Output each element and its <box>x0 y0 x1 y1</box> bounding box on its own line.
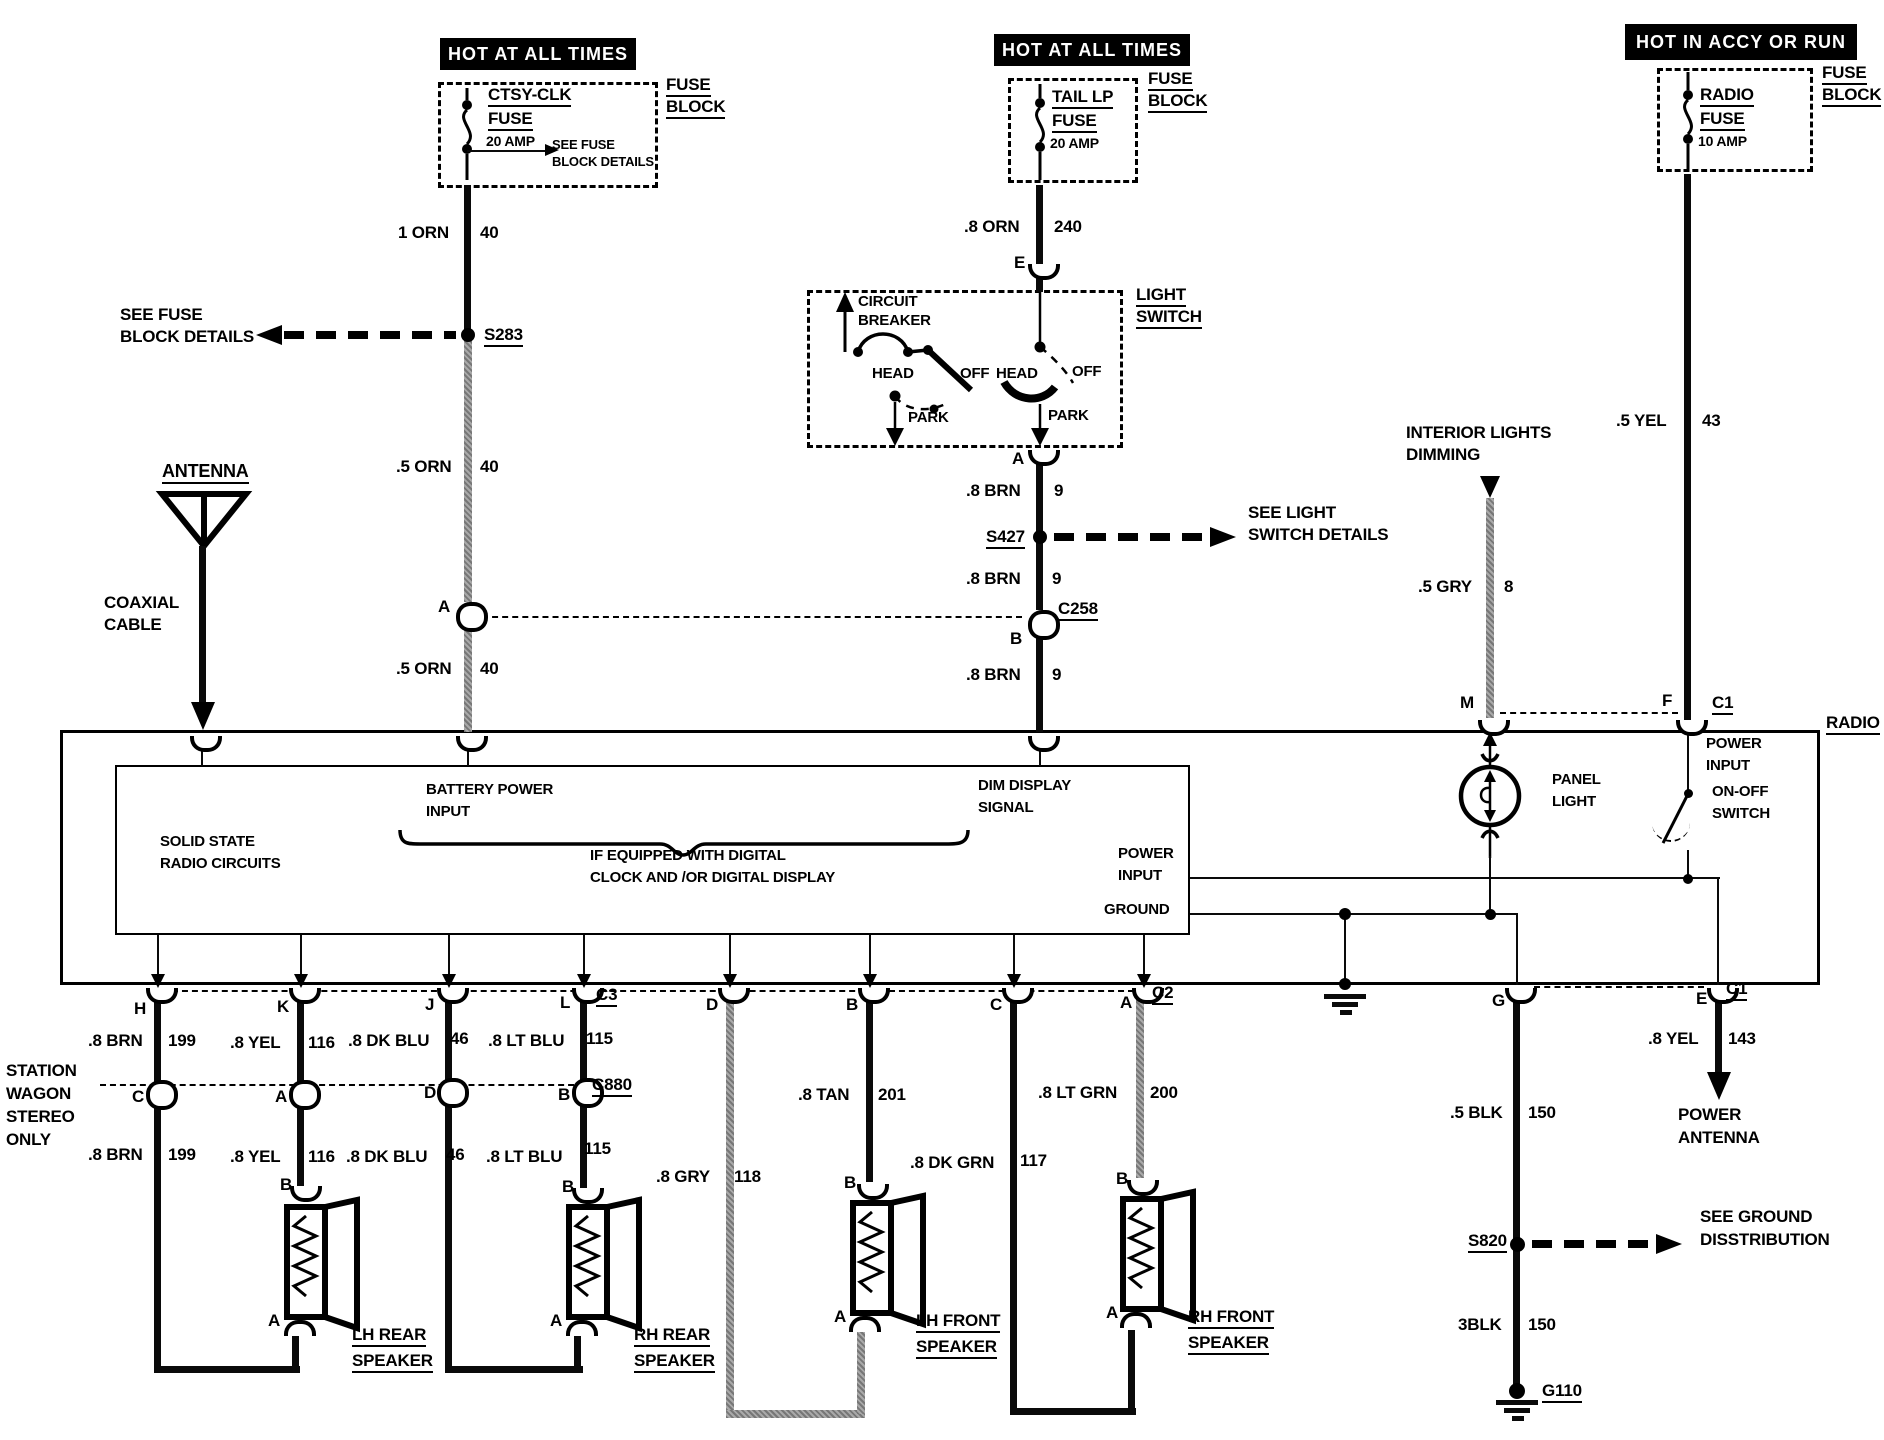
panel-light-icon <box>1458 732 1522 858</box>
label-lswitch-w4n: 9 <box>1052 666 1061 684</box>
fuse-icon <box>457 88 477 180</box>
label-front-gry: .8 GRY <box>656 1168 710 1186</box>
wire-segment <box>1513 998 1520 1388</box>
splice-dot <box>1509 1383 1525 1399</box>
label-radio-label: RADIO <box>1826 714 1880 735</box>
splice-dot <box>1683 874 1693 884</box>
connector-icon <box>437 988 469 1004</box>
label-left-w2n: 40 <box>480 458 499 476</box>
wire-segment <box>869 935 871 975</box>
wire-segment <box>297 1104 304 1190</box>
fuse-icon <box>1678 72 1698 172</box>
label-radio-gnd: GROUND <box>1104 902 1169 918</box>
wire-segment <box>157 935 159 975</box>
label-radio-ss1: SOLID STATE <box>160 834 255 850</box>
label-dimming-m: M <box>1460 694 1474 712</box>
label-lswitch-see2: SWITCH DETAILS <box>1248 526 1388 544</box>
label-radio-pit2: INPUT <box>1706 758 1750 774</box>
connector-icon <box>289 1094 321 1110</box>
label-dimming-t1: INTERIOR LIGHTS <box>1406 424 1551 442</box>
label-dimming-t2: DIMMING <box>1406 446 1480 464</box>
arrowhead-icon <box>1480 476 1500 498</box>
label-left-see2: BLOCK DETAILS <box>120 328 254 346</box>
connector-icon <box>146 1094 178 1110</box>
label-speakers-a: A <box>550 1312 562 1330</box>
wire-segment <box>445 1366 583 1373</box>
splice-dot <box>1339 978 1351 990</box>
arrowhead-icon <box>442 974 456 988</box>
wire-segment <box>1512 1416 1524 1421</box>
label-row1-dkblu: .8 DK BLU <box>348 1032 429 1050</box>
arrowhead-icon <box>1656 1234 1682 1254</box>
splice-dot <box>1684 789 1693 798</box>
label-speakers-rf2: SPEAKER <box>1188 1334 1269 1355</box>
wire-segment <box>1036 185 1043 264</box>
wire-segment <box>1010 1408 1136 1415</box>
label-left-see1: SEE FUSE <box>120 306 202 324</box>
label-conns-k: K <box>277 998 289 1016</box>
label-speakers-lr2: SPEAKER <box>352 1352 433 1373</box>
label-front-gryn: 118 <box>734 1168 761 1186</box>
wire-segment <box>154 1366 300 1373</box>
label-lswitch-w2n: 9 <box>1054 482 1063 500</box>
wire-segment <box>729 935 731 975</box>
label-speakers-b: B <box>844 1174 856 1192</box>
label-fuse1-blk2: BLOCK <box>666 98 725 119</box>
label-radio-dimd2: SIGNAL <box>978 800 1033 816</box>
connector-icon <box>456 616 488 632</box>
wire-segment <box>448 935 450 975</box>
arrowhead-icon <box>577 974 591 988</box>
label-accy-f: F <box>1662 692 1672 710</box>
label-conns-d: D <box>706 996 718 1014</box>
label-row1-yeln: 116 <box>308 1034 335 1052</box>
label-lswitch-e: E <box>1014 254 1025 272</box>
speaker-icon-rh-front <box>1120 1192 1196 1320</box>
label-fuse3-amp: 10 AMP <box>1698 134 1747 149</box>
label-left-w2: .5 ORN <box>396 458 451 476</box>
label-radio-dig2: CLOCK AND /OR DIGITAL DISPLAY <box>590 870 835 886</box>
label-lswitch-park_r: PARK <box>1048 408 1089 424</box>
label-c880-a: A <box>275 1088 287 1106</box>
label-speakers-lf1: LH FRONT <box>916 1312 1000 1333</box>
connector-icon <box>858 988 890 1004</box>
wire-segment <box>1324 994 1366 999</box>
label-fuse1-name2: FUSE <box>488 110 533 131</box>
wire-segment <box>1344 915 1346 985</box>
arrowhead-icon <box>256 325 282 345</box>
wire-segment <box>1332 1002 1358 1007</box>
label-left-w3: .5 ORN <box>396 660 451 678</box>
label-groundckt-w1n: 150 <box>1528 1104 1556 1122</box>
label-radio-batt2: INPUT <box>426 804 470 820</box>
wire-segment <box>292 1336 299 1368</box>
arrowhead-icon <box>1007 974 1021 988</box>
label-c880-c: C <box>132 1088 144 1106</box>
label-radio-sw2: SWITCH <box>1712 806 1770 822</box>
connector-icon <box>718 988 750 1004</box>
wiring-diagram: HOT AT ALL TIMES HOT AT ALL TIMES HOT IN… <box>0 0 1884 1440</box>
label-row1-ltblun: 115 <box>586 1030 613 1048</box>
label-groundckt-w1: .5 BLK <box>1450 1104 1503 1122</box>
speaker-icon-lh-rear <box>284 1200 360 1328</box>
label-front-dkgrnn: 117 <box>1020 1152 1047 1170</box>
label-front-ltgrn: .8 LT GRN <box>1038 1084 1117 1102</box>
label-c880-label: C880 <box>592 1076 632 1097</box>
label-conns-j: J <box>425 996 434 1014</box>
label-fuse2-amp: 20 AMP <box>1050 136 1099 151</box>
wire-segment <box>1504 1408 1530 1413</box>
wire-segment <box>464 620 472 732</box>
arrowhead-icon <box>294 974 308 988</box>
label-fuse2-blk2: BLOCK <box>1148 92 1207 113</box>
label-lswitch-cb2: BREAKER <box>858 313 931 329</box>
label-lswitch-w3: .8 BRN <box>966 570 1021 588</box>
label-radio-pnl1: PANEL <box>1552 772 1601 788</box>
label-fuse1-note2: BLOCK DETAILS <box>552 155 654 169</box>
label-antenna-coax2: CABLE <box>104 616 162 634</box>
reference-arrow-shaft <box>284 331 456 339</box>
wire-segment <box>574 1336 581 1368</box>
label-radio-pnl2: LIGHT <box>1552 794 1596 810</box>
wire-segment <box>1489 856 1491 914</box>
label-row2-ltblun: 115 <box>584 1140 611 1158</box>
wire-segment <box>866 998 873 1182</box>
label-left-splice: S283 <box>484 326 523 347</box>
label-row1-dkblun: 46 <box>450 1030 469 1048</box>
label-radio-batt1: BATTERY POWER <box>426 782 553 798</box>
label-speakers-rr1: RH REAR <box>634 1326 710 1347</box>
label-radio-pwr1: POWER <box>1118 846 1174 862</box>
wire-segment <box>1684 174 1691 722</box>
label-speakers-lf2: SPEAKER <box>916 1338 997 1359</box>
label-speakers-rf1: RH FRONT <box>1188 1308 1274 1329</box>
reference-arrow-shaft <box>1054 533 1210 541</box>
wire-segment <box>726 1410 865 1418</box>
banner-hot-at-all-times-left: HOT AT ALL TIMES <box>440 38 636 70</box>
label-pantenna-w: .8 YEL <box>1648 1030 1698 1048</box>
label-fuse3-name2: FUSE <box>1700 110 1745 131</box>
wire-segment <box>464 340 472 602</box>
label-row1-brn: .8 BRN <box>88 1032 143 1050</box>
label-conns-l: L <box>560 994 570 1012</box>
label-front-dkgrn: .8 DK GRN <box>910 1154 994 1172</box>
label-fuse1-amp: 20 AMP <box>486 134 535 149</box>
fuse-icon <box>1030 84 1050 180</box>
label-fuse1-blk1: FUSE <box>666 76 711 97</box>
wire-segment <box>154 998 161 1082</box>
label-conns-c: C <box>990 996 1002 1014</box>
label-lswitch-w1: .8 ORN <box>964 218 1019 236</box>
connector-icon <box>1028 264 1060 280</box>
wire-segment <box>1340 1010 1352 1015</box>
label-lswitch-t2: SWITCH <box>1136 308 1202 329</box>
splice-dot <box>1510 1237 1525 1252</box>
connector-icon <box>1002 988 1034 1004</box>
wire-segment <box>1190 913 1518 915</box>
label-radio-sw1: ON-OFF <box>1712 784 1768 800</box>
splice-dot <box>1485 909 1496 920</box>
label-row2-yeln: 116 <box>308 1148 335 1166</box>
label-wagon-l3: STEREO <box>6 1108 75 1126</box>
label-radio-dig1: IF EQUIPPED WITH DIGITAL <box>590 848 786 864</box>
label-lswitch-conn: C258 <box>1058 600 1098 621</box>
label-lswitch-head_l: HEAD <box>872 366 914 382</box>
label-row1-brnn: 199 <box>168 1032 196 1050</box>
wire-segment <box>199 546 206 704</box>
label-lswitch-see1: SEE LIGHT <box>1248 504 1336 522</box>
label-radio-pwr2: INPUT <box>1118 868 1162 884</box>
label-lswitch-w4: .8 BRN <box>966 666 1021 684</box>
wire-segment <box>464 185 471 340</box>
wire-segment <box>1715 998 1722 1076</box>
wire-segment <box>297 998 304 1082</box>
wire-segment <box>1516 915 1518 985</box>
label-conns-h: H <box>134 1000 146 1018</box>
label-groundckt-see1: SEE GROUND <box>1700 1208 1812 1226</box>
label-lswitch-t1: LIGHT <box>1136 286 1186 307</box>
label-wagon-l1: STATION <box>6 1062 77 1080</box>
label-radio-ss2: RADIO CIRCUITS <box>160 856 281 872</box>
splice-dot <box>461 328 475 342</box>
arrowhead-icon <box>1137 974 1151 988</box>
connector-icon <box>146 988 178 1004</box>
speaker-icon-rh-rear <box>566 1200 642 1328</box>
label-row2-ltblu: .8 LT BLU <box>486 1148 562 1166</box>
arrowhead-icon <box>863 974 877 988</box>
label-row2-dkblu: .8 DK BLU <box>346 1148 427 1166</box>
wire-segment <box>1136 998 1144 1178</box>
label-fuse2-name2: FUSE <box>1052 112 1097 133</box>
connector-icon <box>1505 988 1537 1004</box>
label-wagon-l4: ONLY <box>6 1131 51 1149</box>
label-conns-a: A <box>1120 994 1132 1012</box>
connector-icon <box>1028 624 1060 640</box>
wire-segment <box>583 935 585 975</box>
wire-segment <box>726 998 734 1416</box>
label-lswitch-a: A <box>1012 450 1024 468</box>
label-speakers-b: B <box>562 1178 574 1196</box>
label-conns-e: E <box>1696 990 1707 1008</box>
label-dimming-w: .5 GRY <box>1418 578 1472 596</box>
label-antenna-coax1: COAXIAL <box>104 594 179 612</box>
label-accy-w: .5 YEL <box>1616 412 1666 430</box>
label-fuse2-name1: TAIL LP <box>1052 88 1113 109</box>
label-lswitch-splice: S427 <box>986 528 1025 549</box>
dashed-line <box>1534 986 1704 988</box>
wire-segment <box>1013 935 1015 975</box>
label-left-w1: 1 ORN <box>398 224 449 242</box>
dashed-line <box>482 616 1022 618</box>
label-accy-conn: C1 <box>1712 694 1733 715</box>
label-speakers-a: A <box>268 1312 280 1330</box>
banner-hot-at-all-times-middle: HOT AT ALL TIMES <box>994 34 1190 66</box>
wire-segment <box>1486 498 1494 718</box>
wire-segment <box>467 150 545 152</box>
connector-icon <box>437 1092 469 1108</box>
label-c880-b: B <box>558 1086 570 1104</box>
wire-segment <box>1717 879 1719 985</box>
label-left-a: A <box>438 598 450 616</box>
label-front-tann: 201 <box>878 1086 906 1104</box>
label-pantenna-wn: 143 <box>1728 1030 1756 1048</box>
arrowhead-icon <box>723 974 737 988</box>
label-groundckt-see2: DISSTRIBUTION <box>1700 1231 1830 1249</box>
label-speakers-a: A <box>834 1308 846 1326</box>
label-lswitch-head_r: HEAD <box>996 366 1038 382</box>
label-row1-yel: .8 YEL <box>230 1034 280 1052</box>
connector-icon <box>1028 450 1060 466</box>
label-row2-brn: .8 BRN <box>88 1146 143 1164</box>
label-left-w3n: 40 <box>480 660 499 678</box>
label-row1-ltblu: .8 LT BLU <box>488 1032 564 1050</box>
label-row2-yel: .8 YEL <box>230 1148 280 1166</box>
label-lswitch-off_l: OFF <box>960 366 989 382</box>
wire-segment <box>154 1104 161 1370</box>
label-speakers-lr1: LH REAR <box>352 1326 426 1347</box>
label-lswitch-park_l: PARK <box>908 410 949 426</box>
label-fuse3-blk2: BLOCK <box>1822 86 1881 107</box>
label-lswitch-w2: .8 BRN <box>966 482 1021 500</box>
label-pantenna-t2: ANTENNA <box>1678 1129 1760 1147</box>
label-front-ltgrnn: 200 <box>1150 1084 1178 1102</box>
label-fuse2-blk1: FUSE <box>1148 70 1193 91</box>
label-speakers-rr2: SPEAKER <box>634 1352 715 1373</box>
label-front-tan: .8 TAN <box>798 1086 849 1104</box>
label-fuse3-name1: RADIO <box>1700 86 1754 107</box>
label-conns-c2: C2 <box>1152 984 1173 1005</box>
label-lswitch-w1n: 240 <box>1054 218 1082 236</box>
label-fuse1-name1: CTSY-CLK <box>488 86 571 107</box>
label-conns-c3: C3 <box>596 986 617 1007</box>
wire-segment <box>1143 935 1145 975</box>
label-dimming-wn: 8 <box>1504 578 1513 596</box>
label-speakers-b: B <box>280 1176 292 1194</box>
label-radio-dimd1: DIM DISPLAY <box>978 778 1071 794</box>
speaker-icon-lh-front <box>850 1196 926 1324</box>
label-pantenna-t1: POWER <box>1678 1106 1741 1124</box>
label-groundckt-w2: 3BLK <box>1458 1316 1502 1334</box>
label-row2-dkblun: 46 <box>446 1146 465 1164</box>
wire-segment <box>300 935 302 975</box>
wire-segment <box>1687 734 1689 792</box>
arrowhead-icon <box>151 974 165 988</box>
label-lswitch-off_r: OFF <box>1072 364 1101 380</box>
splice-dot <box>1339 908 1351 920</box>
banner-hot-in-accy-or-run: HOT IN ACCY OR RUN <box>1625 24 1857 60</box>
label-radio-pit1: POWER <box>1706 736 1762 752</box>
label-groundckt-g: G110 <box>1542 1382 1582 1403</box>
label-speakers-b: B <box>1116 1170 1128 1188</box>
wire-segment <box>1190 877 1720 879</box>
label-conns-c1: C1 <box>1726 980 1747 1001</box>
arrowhead-icon <box>1210 527 1236 547</box>
label-left-w1n: 40 <box>480 224 499 242</box>
wire-segment <box>1010 998 1017 1412</box>
label-lswitch-b: B <box>1010 630 1022 648</box>
label-antenna-label: ANTENNA <box>162 462 249 484</box>
label-speakers-a: A <box>1106 1304 1118 1322</box>
wire-segment <box>1036 634 1043 732</box>
label-groundckt-splice: S820 <box>1468 1232 1507 1253</box>
wire-segment <box>1128 1330 1135 1410</box>
label-lswitch-cb1: CIRCUIT <box>858 294 917 310</box>
label-row2-brnn: 199 <box>168 1146 196 1164</box>
wire-segment <box>445 1100 452 1368</box>
label-fuse3-blk1: FUSE <box>1822 64 1867 85</box>
splice-dot <box>1033 530 1047 544</box>
arrowhead-icon <box>191 702 215 730</box>
label-c880-d: D <box>424 1084 436 1102</box>
label-conns-g: G <box>1492 992 1505 1010</box>
label-groundckt-w2n: 150 <box>1528 1316 1556 1334</box>
antenna-icon <box>156 490 252 550</box>
reference-arrow-shaft <box>1532 1240 1656 1248</box>
label-conns-b: B <box>846 996 858 1014</box>
dashed-line <box>1500 712 1678 714</box>
connector-icon <box>289 988 321 1004</box>
wire-segment <box>857 1330 865 1414</box>
label-lswitch-w3n: 9 <box>1052 570 1061 588</box>
label-wagon-l2: WAGON <box>6 1085 71 1103</box>
label-accy-wn: 43 <box>1702 412 1721 430</box>
label-fuse1-note1: SEE FUSE <box>552 138 615 152</box>
wire-segment <box>1496 1400 1538 1405</box>
arrowhead-icon <box>1707 1072 1731 1100</box>
